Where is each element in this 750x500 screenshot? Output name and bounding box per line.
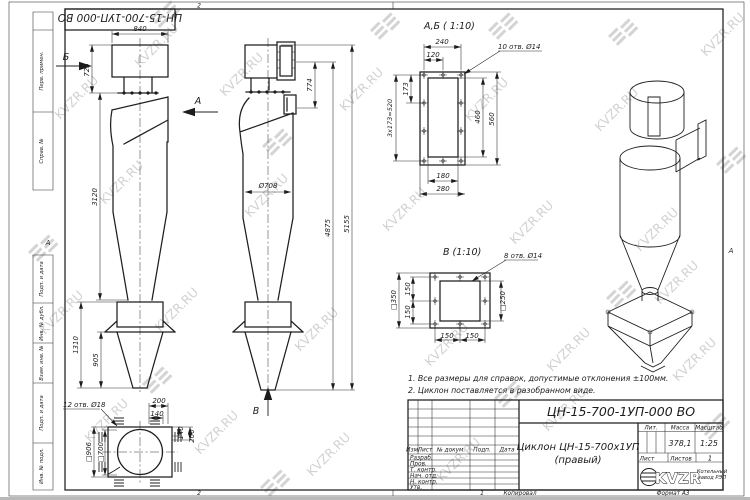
sheets-value: 1 [708,455,712,463]
margin-label: Взам. инв. № [39,345,45,380]
watermark-text: KVZR.RU [652,257,702,307]
dim-173: 173 [402,82,410,95]
bottom-view: 12 отв. Ø18 200 140 140 200 □906 □700 [63,397,196,486]
col-doc: № докум. [436,448,466,454]
dim-520: 3x173=520 [386,99,394,137]
watermark-logo-icon [488,11,518,41]
section-ab: А,Б ( 1:10) 10 отв. Ø14 240 120 173 3x17… [386,21,542,197]
mass-value: 378,1 [669,439,692,448]
notes: 1. Все размеры для справок, допустимые о… [408,374,668,395]
row-utv: Утв. [410,485,422,491]
dim-4875: 4875 [324,219,332,237]
view-arrow-a-head [182,108,195,116]
note-2: 2. Циклон поставляется в разобранном вид… [408,386,596,395]
watermark-text: KVZR.RU [462,74,512,124]
dim-200t: 200 [152,397,166,405]
watermark-logo-icon [142,365,172,395]
scale-value: 1:25 [700,439,718,448]
zone-bottom-right: 1 [480,490,484,497]
watermark-logo-icon [370,11,400,41]
view-label-b: Б [63,52,70,63]
front-view: 840 725 3120 1310 905 Б А [56,25,218,392]
dim-840: 840 [133,25,147,33]
engineering-drawing: KVZR.RU KVZR.RU KVZR.RU KVZR.RU KVZR.RU … [0,0,750,500]
watermark-logo-icon [262,127,292,157]
dim-240: 240 [435,38,449,46]
watermark-text: KVZR.RU [242,170,292,220]
top-stamp-text: ЦН-15-700-1УП-000 ВО [58,11,182,23]
sheets-label: Листов [669,457,692,463]
inlet-duct [676,120,706,172]
dim-120: 120 [426,51,440,59]
dim-280: 280 [436,185,450,193]
body-top [620,146,680,170]
dim-150a: 150 [404,282,412,296]
dim-sq906: □906 [85,441,93,462]
watermark-text: KVZR.RU [422,319,472,369]
format-label: Формат А3 [656,491,689,497]
inlet-flange-outline [420,72,465,165]
designation: ЦН-15-700-1УП-000 ВО [547,404,695,419]
outlet-cylinder [630,92,684,139]
dim-3120: 3120 [91,188,99,206]
watermark-text: KVZR.RU [337,64,387,114]
dim-150d: 150 [465,332,479,340]
mass-label: Масса [671,426,690,432]
watermark-text: KVZR.RU [292,304,342,354]
zone-row-left: А [45,239,51,247]
dim-200r: 200 [188,429,196,443]
leader-8-holes: 8 отв. Ø14 [504,252,542,260]
dim-5155: 5155 [343,215,351,233]
view-arrow-v-head [264,387,272,400]
dim-140r: 140 [177,426,185,440]
dim-140t: 140 [150,410,164,418]
dim-460: 460 [474,110,482,124]
dim-180: 180 [436,172,450,180]
col-list: Лист [417,448,433,454]
dim-708: Ø708 [258,182,278,190]
dim-150c: 150 [440,332,454,340]
watermark-logo-icon [260,468,290,498]
watermark-text: KVZR.RU [434,434,484,484]
dim-1310: 1310 [72,336,80,354]
dust-outlet [642,288,658,295]
watermark-logo-icon [608,17,638,47]
watermark-text: KVZR.RU [544,324,594,374]
leader-line [464,51,500,74]
lit-label: Лит. [643,426,658,432]
watermark-text: KVZR.RU [304,429,354,479]
zone-bottom-left: 2 [197,490,201,497]
margin-label: Подп. и дата [39,261,45,296]
watermark-text: KVZR.RU [507,197,557,247]
copied-label: Копировал [503,491,536,497]
watermark-text: KVZR.RU [670,334,720,384]
spiral-tail [108,467,120,474]
title-block: ЦН-15-700-1УП-000 ВО Циклон ЦН-15-700х1У… [406,400,728,491]
watermark-logo-icon [606,279,636,309]
sheet-label: Лист [639,457,655,463]
watermark-text: KVZR.RU [380,184,430,234]
dim-sq250: □250 [499,290,507,311]
margin-label: Перв. примен. [39,52,45,91]
dim-sq700: □700 [97,441,105,462]
section-v-title: В (1:10) [443,247,481,258]
watermark-text: KVZR.RU [592,84,642,134]
zone-top: 2 [197,3,201,10]
watermark-logo-icon [716,145,746,175]
dim-905: 905 [92,353,100,367]
margin-label: Справ. № [39,138,45,163]
note-1: 1. Все размеры для справок, допустимые о… [408,374,668,383]
margin-label: Инв. № подл. [39,448,45,484]
part-name-line1: Циклон ЦН-15-700х1УП [517,442,640,453]
view-label-v: В [253,406,260,417]
centerlines [102,421,178,483]
side-view: 774 Ø708 4875 5155 В [233,38,355,417]
watermark-logo-icon [28,233,58,263]
watermark-text: KVZR.RU [52,72,102,122]
view-label-a: А [194,96,202,107]
watermark-text: KVZR.RU [97,157,147,207]
col-data: Дата [498,448,514,454]
drawing-sheet: KVZR.RU KVZR.RU KVZR.RU KVZR.RU KVZR.RU … [0,0,750,500]
dim-774: 774 [306,78,314,91]
margin-label: Инв. № дубл. [39,305,45,341]
leader-12-holes: 12 отв. Ø18 [63,401,106,409]
margin-label: Подп. и дата [39,395,45,430]
dim-sq350: □350 [390,289,398,310]
scale-label: Масштаб [695,426,723,432]
col-podp: Подп. [473,448,491,454]
dim-150b: 150 [404,305,412,319]
company-logo-text: KVZR [655,471,701,487]
watermark-text: KVZR.RU [192,407,242,457]
dim-560: 560 [488,112,496,126]
part-name-line2: (правый) [554,455,601,466]
leader-10-holes: 10 отв. Ø14 [498,43,541,51]
section-v: В (1:10) 8 отв. Ø14 □350 150 150 □250 15… [390,247,542,343]
zone-row-right: А [728,247,734,255]
leader-line [472,260,506,281]
section-ab-title: А,Б ( 1:10) [423,21,475,32]
company-tagline-2: завод РЭП [698,475,726,481]
